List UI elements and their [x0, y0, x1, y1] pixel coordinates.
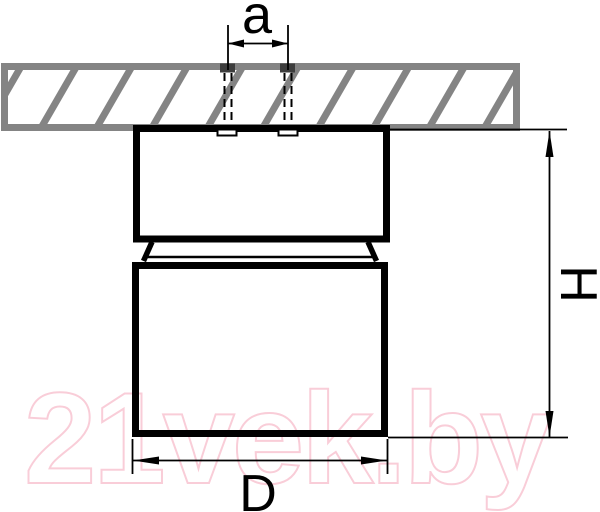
upper-housing-body	[137, 129, 387, 240]
fixture-upper-housing	[137, 129, 387, 240]
fixture-dimension-drawing: a H	[0, 0, 600, 512]
dim-a-arrow-right	[272, 40, 288, 48]
dim-a-label: a	[242, 0, 273, 45]
dim-h-arrow-bottom	[546, 411, 554, 437]
dimension-d: D	[133, 439, 388, 512]
dimension-a: a	[228, 0, 288, 70]
fixture-lower-housing	[136, 266, 385, 434]
dim-h-label: H	[549, 265, 600, 303]
drawing-canvas: a H	[0, 0, 600, 512]
ceiling-section	[5, 64, 517, 128]
dim-d-arrow-right	[361, 457, 387, 465]
screw-slot-right	[279, 130, 298, 136]
screw-slot-left	[218, 130, 237, 136]
dimension-h: H	[388, 130, 600, 438]
dim-h-arrow-top	[546, 131, 554, 157]
fixture-neck	[144, 242, 377, 261]
dim-d-arrow-left	[133, 457, 159, 465]
dim-d-label: D	[239, 465, 277, 512]
ceiling-hatch-slab	[5, 67, 517, 128]
